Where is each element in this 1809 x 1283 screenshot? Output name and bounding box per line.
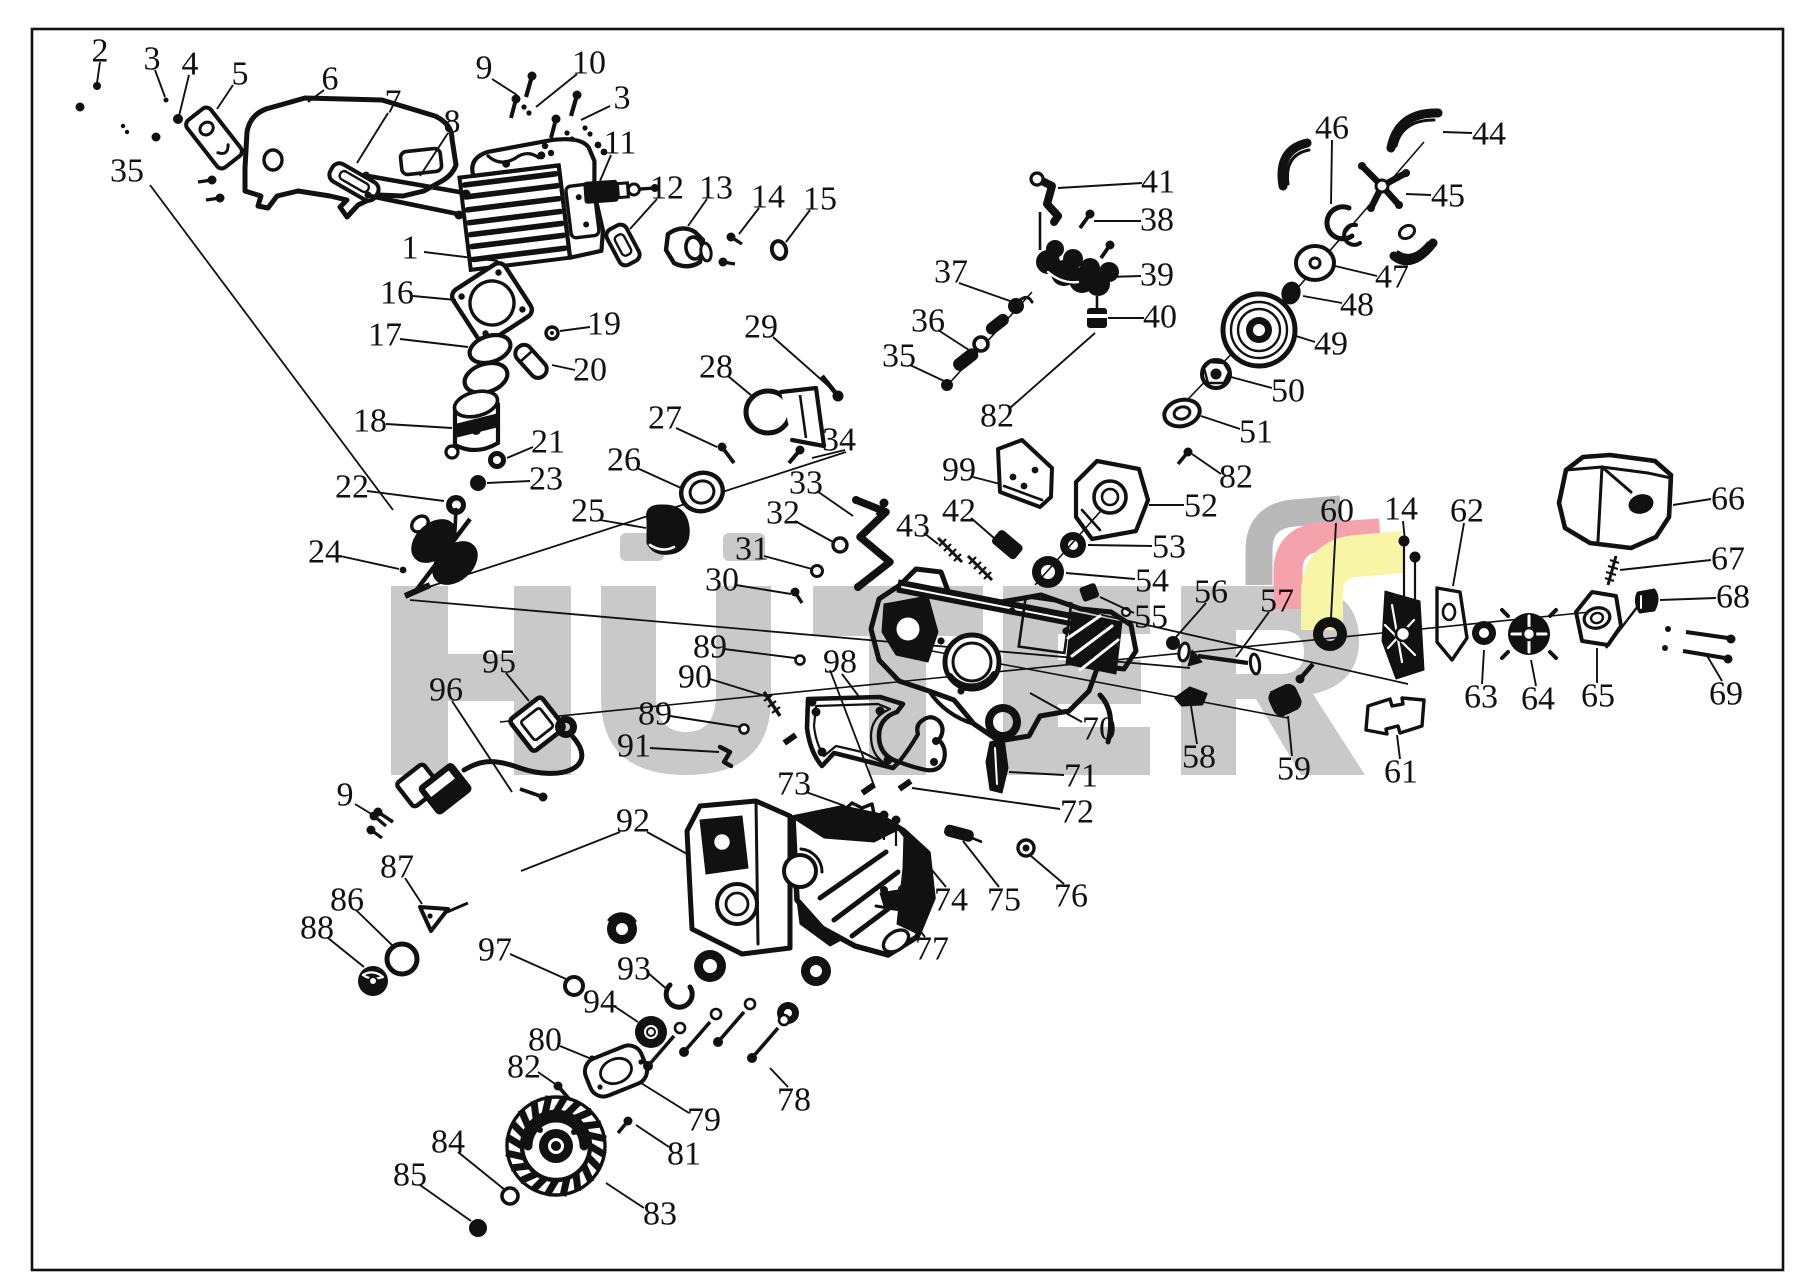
svg-text:43: 43 <box>896 508 930 545</box>
svg-text:1: 1 <box>402 230 419 267</box>
svg-text:59: 59 <box>1277 751 1311 788</box>
svg-text:73: 73 <box>777 766 811 803</box>
svg-text:51: 51 <box>1239 414 1273 451</box>
svg-text:63: 63 <box>1464 679 1498 716</box>
svg-text:28: 28 <box>699 349 733 386</box>
svg-text:97: 97 <box>478 932 512 969</box>
svg-text:3: 3 <box>614 80 631 117</box>
svg-text:87: 87 <box>380 849 414 886</box>
svg-text:71: 71 <box>1064 758 1098 795</box>
svg-text:50: 50 <box>1271 373 1305 410</box>
svg-text:75: 75 <box>987 882 1021 919</box>
svg-text:14: 14 <box>751 179 785 216</box>
svg-text:85: 85 <box>393 1157 427 1194</box>
svg-text:7: 7 <box>385 84 402 121</box>
svg-text:58: 58 <box>1182 739 1216 776</box>
svg-text:22: 22 <box>335 469 369 506</box>
svg-text:82: 82 <box>980 398 1014 435</box>
svg-text:6: 6 <box>322 61 339 98</box>
svg-text:16: 16 <box>380 275 414 312</box>
svg-text:18: 18 <box>353 403 387 440</box>
svg-text:69: 69 <box>1709 676 1743 713</box>
svg-text:94: 94 <box>583 984 617 1021</box>
svg-text:3: 3 <box>144 41 161 78</box>
svg-text:77: 77 <box>915 931 949 968</box>
svg-text:32: 32 <box>766 495 800 532</box>
svg-text:91: 91 <box>617 728 651 765</box>
svg-text:82: 82 <box>507 1049 541 1086</box>
svg-text:17: 17 <box>368 317 402 354</box>
svg-text:9: 9 <box>476 50 493 87</box>
svg-text:61: 61 <box>1384 754 1418 791</box>
svg-text:53: 53 <box>1152 529 1186 566</box>
svg-text:65: 65 <box>1581 678 1615 715</box>
svg-text:27: 27 <box>648 400 682 437</box>
svg-text:60: 60 <box>1320 493 1354 530</box>
svg-text:90: 90 <box>678 659 712 696</box>
svg-text:38: 38 <box>1140 202 1174 239</box>
svg-text:48: 48 <box>1340 287 1374 324</box>
svg-text:41: 41 <box>1141 164 1175 201</box>
svg-text:64: 64 <box>1521 681 1555 718</box>
svg-text:81: 81 <box>667 1136 701 1173</box>
svg-text:54: 54 <box>1135 563 1169 600</box>
svg-text:8: 8 <box>444 104 461 141</box>
svg-text:9: 9 <box>337 777 354 814</box>
svg-text:70: 70 <box>1082 711 1116 748</box>
svg-text:78: 78 <box>777 1082 811 1119</box>
svg-text:29: 29 <box>744 309 778 346</box>
svg-text:26: 26 <box>607 442 641 479</box>
svg-text:42: 42 <box>942 493 976 530</box>
svg-text:34: 34 <box>822 422 856 459</box>
svg-text:74: 74 <box>934 882 968 919</box>
svg-text:98: 98 <box>823 644 857 681</box>
svg-text:67: 67 <box>1711 541 1745 578</box>
svg-text:47: 47 <box>1375 259 1409 296</box>
svg-text:11: 11 <box>604 125 637 162</box>
svg-text:95: 95 <box>482 644 516 681</box>
svg-text:56: 56 <box>1194 574 1228 611</box>
svg-text:19: 19 <box>587 306 621 343</box>
svg-text:20: 20 <box>573 352 607 389</box>
svg-text:68: 68 <box>1716 579 1750 616</box>
svg-text:79: 79 <box>687 1102 721 1139</box>
svg-text:93: 93 <box>617 951 651 988</box>
svg-text:86: 86 <box>330 882 364 919</box>
svg-text:4: 4 <box>182 46 199 83</box>
svg-text:21: 21 <box>531 424 565 461</box>
svg-text:52: 52 <box>1184 488 1218 525</box>
svg-text:82: 82 <box>1219 459 1253 496</box>
svg-text:36: 36 <box>911 303 945 340</box>
svg-text:13: 13 <box>699 170 733 207</box>
svg-text:40: 40 <box>1143 299 1177 336</box>
svg-text:5: 5 <box>232 56 249 93</box>
svg-text:99: 99 <box>942 452 976 489</box>
svg-text:35: 35 <box>882 338 916 375</box>
svg-text:55: 55 <box>1134 599 1168 636</box>
svg-text:45: 45 <box>1431 178 1465 215</box>
svg-text:23: 23 <box>529 461 563 498</box>
svg-text:35: 35 <box>110 153 144 190</box>
svg-text:92: 92 <box>616 803 650 840</box>
svg-text:66: 66 <box>1711 481 1745 518</box>
svg-text:39: 39 <box>1140 257 1174 294</box>
svg-text:57: 57 <box>1260 583 1294 620</box>
svg-text:88: 88 <box>300 910 334 947</box>
svg-text:62: 62 <box>1450 493 1484 530</box>
svg-text:30: 30 <box>705 562 739 599</box>
svg-text:15: 15 <box>803 181 837 218</box>
svg-text:14: 14 <box>1384 491 1418 528</box>
svg-text:24: 24 <box>308 534 342 571</box>
svg-text:76: 76 <box>1054 878 1088 915</box>
svg-text:37: 37 <box>934 254 968 291</box>
svg-text:46: 46 <box>1315 110 1349 147</box>
svg-text:10: 10 <box>572 45 606 82</box>
svg-text:72: 72 <box>1060 794 1094 831</box>
svg-text:25: 25 <box>571 493 605 530</box>
svg-text:84: 84 <box>431 1124 465 1161</box>
svg-text:12: 12 <box>650 170 684 207</box>
svg-text:49: 49 <box>1314 326 1348 363</box>
svg-text:96: 96 <box>429 672 463 709</box>
svg-text:44: 44 <box>1472 116 1506 153</box>
svg-text:83: 83 <box>643 1196 677 1233</box>
svg-text:2: 2 <box>92 33 109 70</box>
svg-text:31: 31 <box>735 531 769 568</box>
